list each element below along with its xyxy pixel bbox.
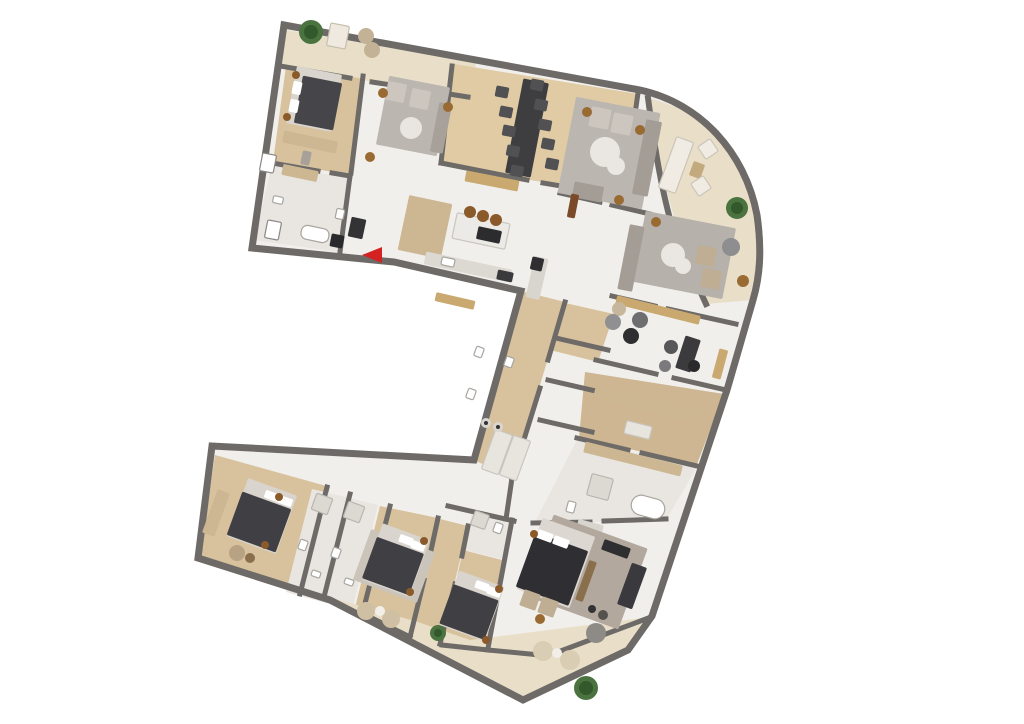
outdoor-round-chair (533, 641, 553, 661)
plant-inner (434, 629, 442, 637)
shower (587, 474, 614, 501)
console-table (435, 292, 476, 310)
side-table (598, 610, 608, 620)
bedside-lamp (275, 493, 283, 501)
bedside-lamp (495, 585, 503, 593)
floor-plan-svg (0, 0, 1024, 724)
floor-lamp (582, 107, 592, 117)
outdoor-side-table (375, 606, 385, 616)
bar-stool (477, 210, 489, 222)
floor-lamp (614, 195, 624, 205)
bedside-lamp (261, 541, 269, 549)
side-table (535, 614, 545, 624)
bedside-lamp (283, 113, 291, 121)
armchair (610, 112, 633, 135)
floor-lamp (651, 217, 661, 227)
armchair (700, 268, 722, 290)
toilet (474, 346, 485, 358)
bedside-lamp (530, 530, 538, 538)
pouf (632, 312, 648, 328)
round-table (586, 623, 606, 643)
pouf (245, 553, 255, 563)
desk-chair (664, 340, 678, 354)
desk-chair (659, 360, 671, 372)
round-table (400, 117, 422, 139)
floor-plan-canvas (0, 0, 1024, 724)
pouf (623, 328, 639, 344)
desk-chair (688, 360, 700, 372)
floor-lamp (635, 125, 645, 135)
plant-inner (579, 681, 593, 695)
toilet (335, 208, 345, 219)
interior-wall (332, 173, 350, 176)
shaft-box (259, 153, 276, 173)
plant-inner (304, 25, 318, 39)
pouf (612, 302, 626, 316)
side-table (588, 605, 596, 613)
armchair (409, 88, 431, 110)
bedside-lamp (420, 537, 428, 545)
round-chair (722, 238, 740, 256)
washer-door (484, 421, 488, 425)
outdoor-lounger (326, 23, 349, 49)
outdoor-round-chair (358, 28, 374, 44)
shaft-dark (329, 233, 344, 248)
sink (272, 196, 283, 205)
interior-wall (604, 519, 666, 521)
plant-inner (731, 202, 743, 214)
side-table (737, 275, 749, 287)
floor-lamp (378, 88, 388, 98)
bar-stool (490, 214, 502, 226)
outdoor-round-chair (560, 650, 580, 670)
coffee-table (607, 157, 625, 175)
toilet (466, 388, 477, 400)
outdoor-round-chair (364, 42, 380, 58)
washer-door (496, 425, 500, 429)
outdoor-round-chair (357, 602, 375, 620)
pouf (229, 545, 245, 561)
bedside-lamp (482, 636, 490, 644)
floor-lamp (365, 152, 375, 162)
bar-stool (464, 206, 476, 218)
armchair (385, 81, 407, 103)
outdoor-side-table (552, 648, 562, 658)
armchair (695, 245, 717, 267)
pouf (605, 314, 621, 330)
bedside-lamp (292, 71, 300, 79)
coffee-table (675, 258, 691, 274)
floor-lamp (443, 102, 453, 112)
shaft-box (264, 220, 281, 240)
bedside-lamp (406, 588, 414, 596)
armchair (588, 106, 611, 129)
